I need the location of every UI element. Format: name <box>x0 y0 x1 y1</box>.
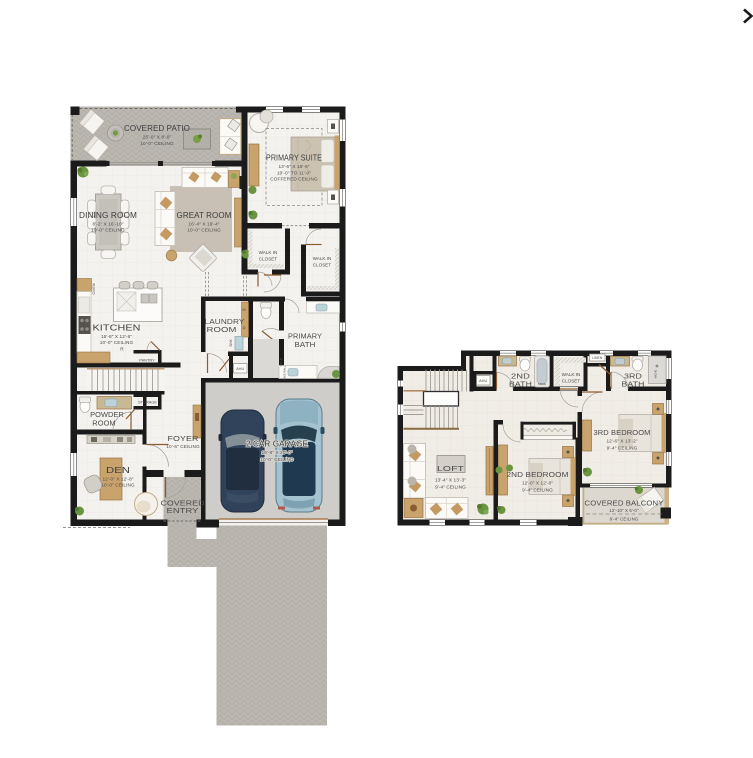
svg-text:15'-8" X 12'-6": 15'-8" X 12'-6" <box>101 334 132 339</box>
svg-text:9'-4" CEILING: 9'-4" CEILING <box>435 484 466 489</box>
svg-text:WALK IN: WALK IN <box>259 250 278 255</box>
svg-text:2 CAR GARAGE: 2 CAR GARAGE <box>246 439 308 449</box>
svg-text:12'-10" X 6'-0": 12'-10" X 6'-0" <box>609 508 639 513</box>
svg-text:19'-8" X 20'-0": 19'-8" X 20'-0" <box>261 450 292 455</box>
svg-text:12'-0" X 12'-0": 12'-0" X 12'-0" <box>522 481 553 486</box>
svg-text:12'-6" X 13'-2": 12'-6" X 13'-2" <box>606 439 637 444</box>
svg-text:W: W <box>242 307 246 312</box>
svg-text:GREAT ROOM: GREAT ROOM <box>177 210 232 220</box>
svg-text:WALK IN: WALK IN <box>562 372 581 377</box>
svg-text:10'-0" CEILING: 10'-0" CEILING <box>100 340 134 345</box>
svg-text:DEN: DEN <box>106 465 130 475</box>
svg-text:10'-0" CEILING: 10'-0" CEILING <box>91 228 125 233</box>
svg-text:8'-2" X 16'-10": 8'-2" X 16'-10" <box>92 221 123 226</box>
svg-text:STORAGE: STORAGE <box>138 400 157 405</box>
svg-text:DINING ROOM: DINING ROOM <box>79 210 137 220</box>
svg-text:COVERED PATIO: COVERED PATIO <box>124 123 190 133</box>
svg-text:10'-0" CEILING: 10'-0" CEILING <box>140 141 174 146</box>
svg-text:10'-0" CEILING: 10'-0" CEILING <box>101 483 135 488</box>
svg-text:10'-0" CEILING: 10'-0" CEILING <box>187 228 221 233</box>
svg-text:R: R <box>120 346 124 351</box>
svg-text:16'-4" X 19'-4": 16'-4" X 19'-4" <box>188 221 219 226</box>
svg-text:AHU: AHU <box>479 378 487 383</box>
svg-text:12'-0" X 12'-8": 12'-0" X 12'-8" <box>102 476 133 481</box>
svg-text:BATH: BATH <box>295 340 316 349</box>
svg-text:13'-4" X 13'-3": 13'-4" X 13'-3" <box>435 477 466 482</box>
svg-text:ENTRY: ENTRY <box>167 506 199 515</box>
svg-text:ROOM: ROOM <box>92 419 115 428</box>
svg-text:OVEN: OVEN <box>91 283 96 294</box>
svg-text:NICHE: NICHE <box>654 370 658 379</box>
svg-text:10'-6" CEILING: 10'-6" CEILING <box>166 444 200 449</box>
svg-text:CLOSET: CLOSET <box>259 257 278 262</box>
svg-text:ROOM: ROOM <box>207 325 237 334</box>
svg-text:13'-6" X 16'-6": 13'-6" X 16'-6" <box>278 164 309 169</box>
svg-text:COFFERED CEILING: COFFERED CEILING <box>270 177 318 182</box>
svg-text:BATH: BATH <box>509 380 532 389</box>
svg-text:3RD BEDROOM: 3RD BEDROOM <box>594 428 651 437</box>
svg-text:LOFT: LOFT <box>437 464 464 473</box>
svg-text:AHU: AHU <box>236 366 244 371</box>
svg-text:FOYER: FOYER <box>168 434 199 443</box>
svg-text:CLOSET: CLOSET <box>313 263 332 268</box>
svg-text:25'-0" X 8'-0": 25'-0" X 8'-0" <box>143 135 172 140</box>
svg-text:10'-0" CEILING: 10'-0" CEILING <box>260 457 294 462</box>
svg-text:KITCHEN: KITCHEN <box>93 323 141 333</box>
svg-text:NICHE: NICHE <box>538 382 546 386</box>
svg-text:COVERED BALCONY: COVERED BALCONY <box>585 499 664 508</box>
svg-text:10'-0" TO 11'-0": 10'-0" TO 11'-0" <box>277 170 311 175</box>
svg-text:KNEE WALL: KNEE WALL <box>283 365 287 380</box>
svg-text:WALK IN: WALK IN <box>313 256 332 261</box>
svg-text:BATH: BATH <box>622 380 645 389</box>
svg-text:9'-4" CEILING: 9'-4" CEILING <box>607 446 638 451</box>
svg-text:9'-4" CEILING: 9'-4" CEILING <box>610 516 639 521</box>
svg-text:CLOSET: CLOSET <box>562 379 581 384</box>
svg-text:NICHE: NICHE <box>279 358 283 367</box>
svg-text:PANTRY: PANTRY <box>139 358 155 363</box>
svg-text:PRIMARY SUITE: PRIMARY SUITE <box>266 153 322 163</box>
svg-text:2ND BEDROOM: 2ND BEDROOM <box>507 470 569 479</box>
svg-text:LINEN: LINEN <box>592 356 603 360</box>
svg-text:9'-4" CEILING: 9'-4" CEILING <box>522 488 553 493</box>
svg-text:SINK: SINK <box>229 338 233 346</box>
